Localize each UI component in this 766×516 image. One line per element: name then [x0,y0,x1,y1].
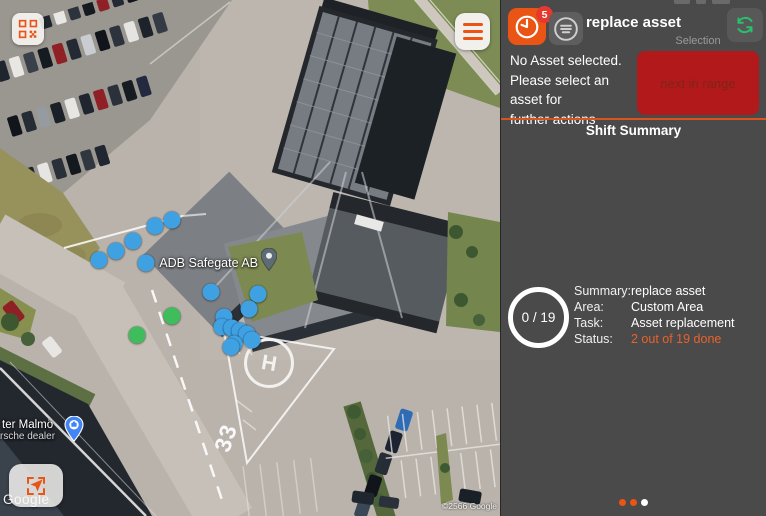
asset-dot-open[interactable] [223,339,240,356]
locate-me-button[interactable] [9,464,63,507]
dealer-label-line2: rsche dealer [0,431,55,442]
place-label: ADB Safegate AB [120,256,258,270]
qr-scan-button[interactable] [12,13,44,45]
location-arrow-icon [24,474,48,498]
asset-dot-open[interactable] [125,233,142,250]
page-dot-2[interactable] [641,499,648,506]
map-menu-button[interactable] [455,13,490,50]
asset-dot-open[interactable] [250,286,267,303]
asset-dot-done[interactable] [164,308,181,325]
asset-dot-open[interactable] [241,301,258,318]
asset-dot-open[interactable] [164,212,181,229]
action-panel: 5 replace asset No Asset selected. Pleas… [500,0,766,516]
progress-ring: 0 / 19 [508,287,569,348]
asset-dot-open[interactable] [147,218,164,235]
place-pin-icon[interactable] [261,248,277,272]
summary-row: Task: Asset replacement [574,316,764,332]
refresh-icon [733,13,757,37]
asset-dot-open[interactable] [244,332,261,349]
next-in-range-button[interactable]: next in range [637,51,759,115]
page-dot-1[interactable] [630,499,637,506]
asset-dot-open[interactable] [91,252,108,269]
dealer-label-line1: ter Malmö [2,419,53,431]
message-line: No Asset selected. [510,51,640,71]
hamburger-icon [463,23,483,26]
summary-row-status: Status: 2 out of 19 done [574,332,764,348]
selection-label: Selection [637,35,759,47]
page-indicator [501,499,766,506]
summary-row: Area: Custom Area [574,300,764,316]
page-dot-0[interactable] [619,499,626,506]
progress-text: 0 / 19 [522,310,556,325]
qr-code-icon [18,19,38,39]
status-value: 2 out of 19 done [631,332,721,348]
shift-summary-title: Shift Summary [501,123,766,138]
dealer-pin-icon[interactable] [64,416,84,443]
status-bar-sliver [674,0,744,4]
summary-row: Summary: replace asset [574,284,764,300]
asset-dot-done[interactable] [129,327,146,344]
map-copyright: ©2566 Google [442,501,497,511]
asset-dot-open[interactable] [203,284,220,301]
message-line: Please select an asset for [510,71,640,110]
panel-divider [501,118,766,120]
satellite-map[interactable]: ADB Safegate AB ter Malmö rsche dealer H… [0,0,500,516]
app-window: ADB Safegate AB ter Malmö rsche dealer H… [0,0,766,516]
